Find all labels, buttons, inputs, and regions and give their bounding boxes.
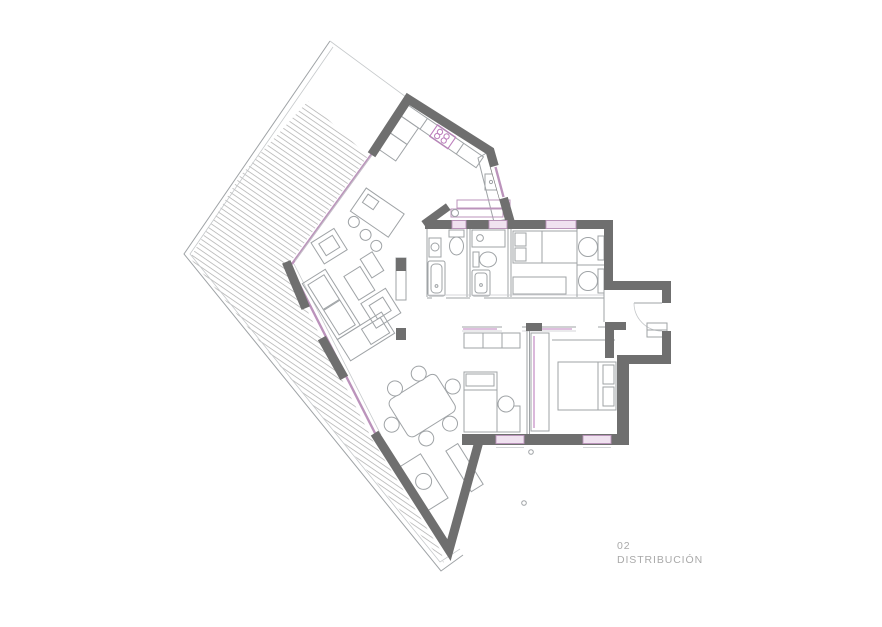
outer-right-wall [662,331,671,358]
hall-top-wall [604,281,671,290]
window [496,436,524,444]
window [452,221,466,229]
window [583,436,611,444]
bedroom3-right-wall [617,355,629,445]
desk-chair [498,396,514,412]
floor-plan-page: 02 DISTRIBUCIÓN [0,0,882,627]
window [546,221,576,229]
plan-title: DISTRIBUCIÓN [617,553,703,566]
bedroom1-right-wall [604,220,613,285]
wall-stub [612,322,626,330]
window [489,221,507,229]
outer-right-wall [662,290,671,303]
column [396,328,406,340]
column-cap [396,258,406,271]
floor-plan-drawing: 02 DISTRIBUCIÓN [0,0,882,627]
plan-number: 02 [617,540,630,552]
